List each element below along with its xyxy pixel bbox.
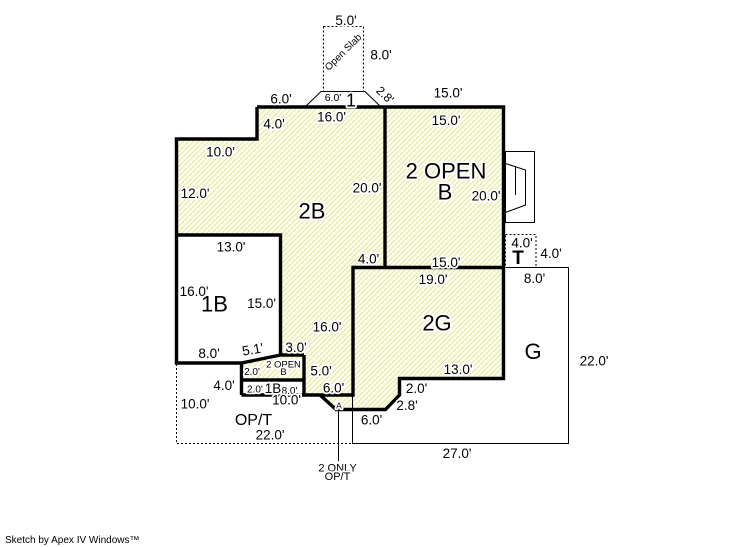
svg-text:6.0': 6.0': [361, 413, 382, 428]
svg-text:B: B: [280, 367, 286, 378]
svg-text:4.0': 4.0': [213, 378, 234, 393]
svg-text:2.0': 2.0': [247, 385, 263, 396]
svg-text:10.0': 10.0': [181, 397, 210, 412]
svg-text:2G: 2G: [422, 311, 451, 336]
svg-text:12.0': 12.0': [181, 186, 210, 201]
svg-text:15.0': 15.0': [434, 86, 463, 101]
svg-text:8.0': 8.0': [524, 271, 545, 286]
svg-text:2.0': 2.0': [244, 367, 260, 378]
svg-text:20.0': 20.0': [353, 181, 382, 196]
svg-text:20.0': 20.0': [472, 189, 501, 204]
svg-text:16.0': 16.0': [313, 320, 342, 335]
svg-text:B: B: [438, 180, 453, 205]
svg-text:8.0': 8.0': [198, 346, 219, 361]
svg-text:22.0': 22.0': [256, 428, 285, 443]
svg-text:4.0': 4.0': [358, 252, 379, 267]
svg-text:4.0': 4.0': [263, 117, 284, 132]
svg-text:15.0': 15.0': [432, 113, 461, 128]
svg-text:A: A: [336, 401, 342, 411]
svg-text:G: G: [524, 339, 541, 364]
svg-text:1B: 1B: [201, 292, 228, 317]
svg-text:6.0': 6.0': [323, 381, 344, 396]
svg-text:Open Slab: Open Slab: [323, 32, 365, 74]
svg-text:16.0': 16.0': [317, 110, 346, 125]
svg-text:4.0': 4.0': [511, 236, 532, 251]
svg-text:2.0': 2.0': [406, 381, 427, 396]
svg-text:4.0': 4.0': [540, 246, 561, 261]
svg-text:5.0': 5.0': [335, 13, 356, 28]
svg-text:10.0': 10.0': [272, 393, 301, 408]
svg-text:T: T: [512, 248, 524, 269]
svg-text:15.0': 15.0': [247, 296, 276, 311]
svg-text:OP/T: OP/T: [235, 412, 273, 429]
svg-text:13.0': 13.0': [217, 240, 246, 255]
svg-text:8.0': 8.0': [370, 48, 391, 63]
svg-text:OP/T: OP/T: [325, 471, 351, 483]
svg-text:19.0': 19.0': [419, 272, 448, 287]
svg-text:13.0': 13.0': [444, 362, 473, 377]
svg-text:6.0': 6.0': [325, 92, 342, 104]
svg-text:5.1': 5.1': [241, 340, 265, 358]
svg-text:3.0': 3.0': [285, 340, 306, 355]
svg-text:15.0': 15.0': [432, 255, 461, 270]
svg-text:1: 1: [346, 91, 356, 111]
svg-text:10.0': 10.0': [206, 145, 235, 160]
svg-text:2B: 2B: [299, 199, 326, 224]
svg-text:Sketch by Apex IV Windows™: Sketch by Apex IV Windows™: [5, 535, 140, 546]
svg-text:6.0': 6.0': [270, 92, 291, 107]
svg-text:22.0': 22.0': [580, 354, 609, 369]
svg-text:2.8': 2.8': [396, 398, 417, 413]
svg-text:27.0': 27.0': [443, 446, 472, 461]
svg-text:5.0': 5.0': [310, 364, 331, 379]
